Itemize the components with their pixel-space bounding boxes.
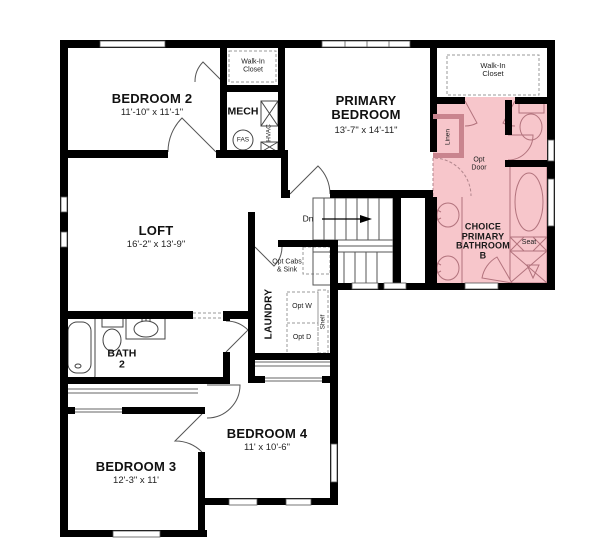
room-dims-loft: 16'-2" x 13'-9" — [127, 240, 185, 250]
window — [352, 283, 378, 289]
window — [286, 499, 311, 505]
room-label-mech: MECH — [228, 106, 259, 117]
shelf-label: Shelf — [319, 315, 326, 330]
window — [229, 499, 257, 505]
door-swing-bedroom3 — [175, 414, 202, 452]
door-swing-bedroom2 — [168, 118, 216, 152]
room-label-bath2: BATH 2 — [105, 349, 139, 372]
toilet-tank-icon — [102, 318, 123, 327]
window — [548, 179, 554, 226]
toilet-tank-icon — [519, 103, 544, 113]
room-label-bedroom4: BEDROOM 4 — [227, 427, 308, 441]
room-label-bedroom3: BEDROOM 3 — [96, 460, 177, 474]
window — [61, 232, 67, 247]
opt-cabinet-dashed — [303, 247, 330, 274]
window — [100, 41, 165, 47]
window — [465, 283, 498, 289]
door-swing-bath2 — [226, 321, 248, 352]
room-label-choice-bathroom: CHOICE PRIMARY BATHROOM B — [452, 223, 514, 262]
floorplan-svg — [0, 0, 604, 550]
window — [548, 140, 554, 161]
floor-plan: BEDROOM 2 11'-10" x 11'-1" Walk-In Close… — [0, 0, 604, 550]
opt-dryer-label: Opt D — [292, 334, 312, 342]
opt-door-label: Opt Door — [467, 156, 491, 171]
room-label-loft: LOFT — [139, 224, 174, 238]
sink-icon — [134, 321, 158, 337]
fas-label: FAS — [237, 136, 249, 143]
linen-label: Linen — [444, 129, 451, 145]
toilet-icon — [520, 114, 542, 140]
room-label-laundry: LAUNDRY — [265, 289, 276, 340]
seat-label: Seat — [522, 239, 536, 247]
room-label-walkin-closet-bedroom2: Walk-In Closet — [236, 58, 270, 73]
stairs-down-label: Dn — [303, 214, 314, 223]
hvac-label: HVAC — [265, 124, 272, 142]
room-dims-primary: 13'-7" x 14'-11" — [334, 126, 397, 136]
opt-washer-label: Opt W — [292, 303, 312, 311]
bathtub-icon — [515, 173, 543, 231]
down-arrow-icon — [322, 215, 372, 223]
window — [384, 283, 406, 289]
window — [61, 197, 67, 212]
room-label-walkin-closet-primary: Walk-In Closet — [475, 62, 511, 78]
room-dims-bedroom3: 12'-3" x 11' — [113, 476, 159, 486]
room-label-primary: PRIMARY BEDROOM — [324, 94, 408, 122]
window — [322, 41, 410, 47]
bathtub-icon — [64, 317, 95, 378]
room-dims-bedroom2: 11'-10" x 11'-1" — [121, 108, 183, 118]
room-label-bedroom2: BEDROOM 2 — [112, 92, 193, 106]
door-swing-closet — [195, 62, 223, 82]
door-swing-primary — [290, 166, 330, 194]
room-dims-bedroom4: 11' x 10'-6" — [244, 443, 290, 453]
window — [113, 531, 160, 537]
opt-cabs-sink-label: Opt Cabs & Sink — [272, 258, 302, 273]
door-swing-bedroom4 — [207, 385, 240, 418]
window — [331, 444, 337, 482]
